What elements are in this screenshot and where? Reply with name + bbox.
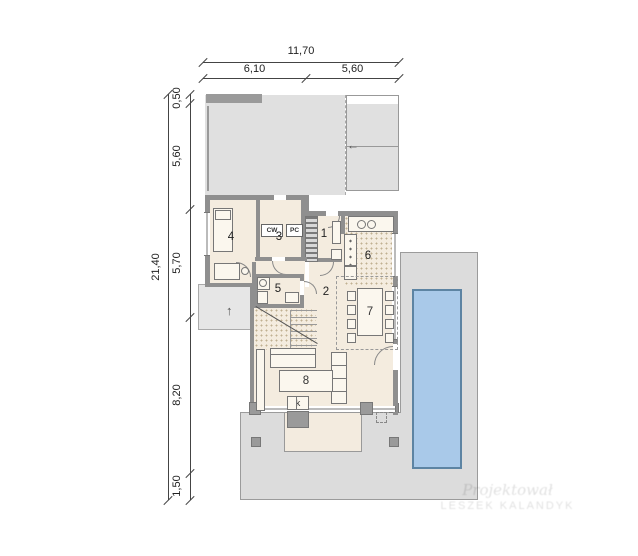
dim-left-seg-2: 5,70 — [171, 233, 183, 293]
dim-left-total: 21,40 — [150, 237, 162, 297]
hall-cabinet — [331, 249, 342, 260]
kitchen-sink-bowl — [357, 220, 366, 229]
desk-chair — [241, 267, 249, 275]
wall-hall1-kitchen — [341, 216, 345, 234]
terrace-post — [389, 437, 399, 447]
dim-left-seg-0: 0,50 — [171, 68, 183, 128]
room-label-7: 7 — [367, 306, 373, 318]
room-label-2: 2 — [318, 286, 334, 298]
toilet — [257, 291, 268, 304]
sofa-divider — [331, 365, 347, 366]
entry-arrow-icon: ↑ — [226, 304, 233, 317]
dining-chair — [347, 291, 356, 301]
desk — [214, 263, 240, 280]
bed-pillow — [215, 210, 231, 220]
dining-chair — [385, 291, 394, 301]
dining-chair — [385, 305, 394, 315]
dining-chair — [347, 333, 356, 343]
watermark: Projektował LESZEK KALANDYK — [410, 481, 605, 512]
kitchen-cooktop — [344, 234, 357, 266]
room-label-4: 4 — [223, 231, 239, 243]
sofa-top — [270, 348, 316, 368]
room-label-5: 5 — [270, 283, 286, 295]
bedroom-window — [204, 212, 210, 256]
garage-driveway-divider — [345, 95, 346, 195]
swimming-pool — [412, 289, 462, 469]
dim-line-top-segs — [203, 78, 399, 79]
dim-left-seg-3: 8,20 — [171, 365, 183, 425]
garage-left-wall — [207, 106, 209, 191]
dim-top-seg2: 5,60 — [306, 63, 399, 75]
sofa-divider — [331, 378, 347, 379]
hall-radiator — [332, 221, 341, 244]
wall-bath-bottom — [254, 304, 304, 308]
driveway-top-strip — [347, 96, 398, 104]
kitchen-window — [392, 233, 398, 277]
dim-left-seg-4: 1,50 — [171, 456, 183, 516]
room-label-3: 3 — [271, 231, 287, 243]
fireplace-divider — [296, 396, 297, 410]
bath-sink — [285, 292, 299, 303]
dim-top-total: 11,70 — [203, 45, 399, 57]
fireplace: k — [287, 396, 309, 410]
dining-chair — [347, 319, 356, 329]
terrace-post — [251, 437, 261, 447]
dining-chair — [385, 319, 394, 329]
dim-top-seg1: 6,10 — [203, 63, 306, 75]
closet-pc: PC — [286, 224, 303, 237]
entry-porch — [198, 284, 252, 330]
dim-line-left-segs — [190, 94, 191, 500]
sofa-top-cushion-line — [270, 354, 316, 355]
sofa-divider — [331, 391, 347, 392]
dining-chair — [347, 305, 356, 315]
kitchen-sink-bowl — [367, 220, 376, 229]
garage-floor — [205, 95, 345, 195]
dining-chair — [385, 333, 394, 343]
room-label-1: 1 — [316, 228, 332, 240]
coffee-table: 8 — [279, 370, 333, 392]
room-label-6: 6 — [360, 250, 376, 262]
tv-sideboard — [256, 349, 265, 411]
dim-left-seg-1: 5,60 — [171, 126, 183, 186]
garage-top-wall — [206, 94, 262, 103]
wall-step — [205, 283, 255, 287]
floor-plan-canvas: 11,70 6,10 5,60 21,40 0,50 5,60 5,70 8,2… — [0, 0, 638, 556]
watermark-caps-line: LESZEK KALANDYK — [410, 500, 605, 512]
dining-table: 7 — [357, 288, 383, 336]
garage-door-gap — [274, 195, 286, 200]
watermark-script-line: Projektował — [410, 481, 605, 499]
washing-machine-drum — [259, 279, 267, 287]
glass-wall-south — [254, 406, 396, 412]
corner-post — [360, 402, 373, 415]
chimney — [287, 411, 309, 428]
room-label-8: 8 — [303, 375, 309, 387]
wall-room4-room3 — [256, 199, 260, 257]
terrace-post-dashed — [376, 412, 387, 423]
driveway-arrow-icon: ← — [347, 139, 359, 151]
dim-line-left-total — [168, 94, 169, 500]
